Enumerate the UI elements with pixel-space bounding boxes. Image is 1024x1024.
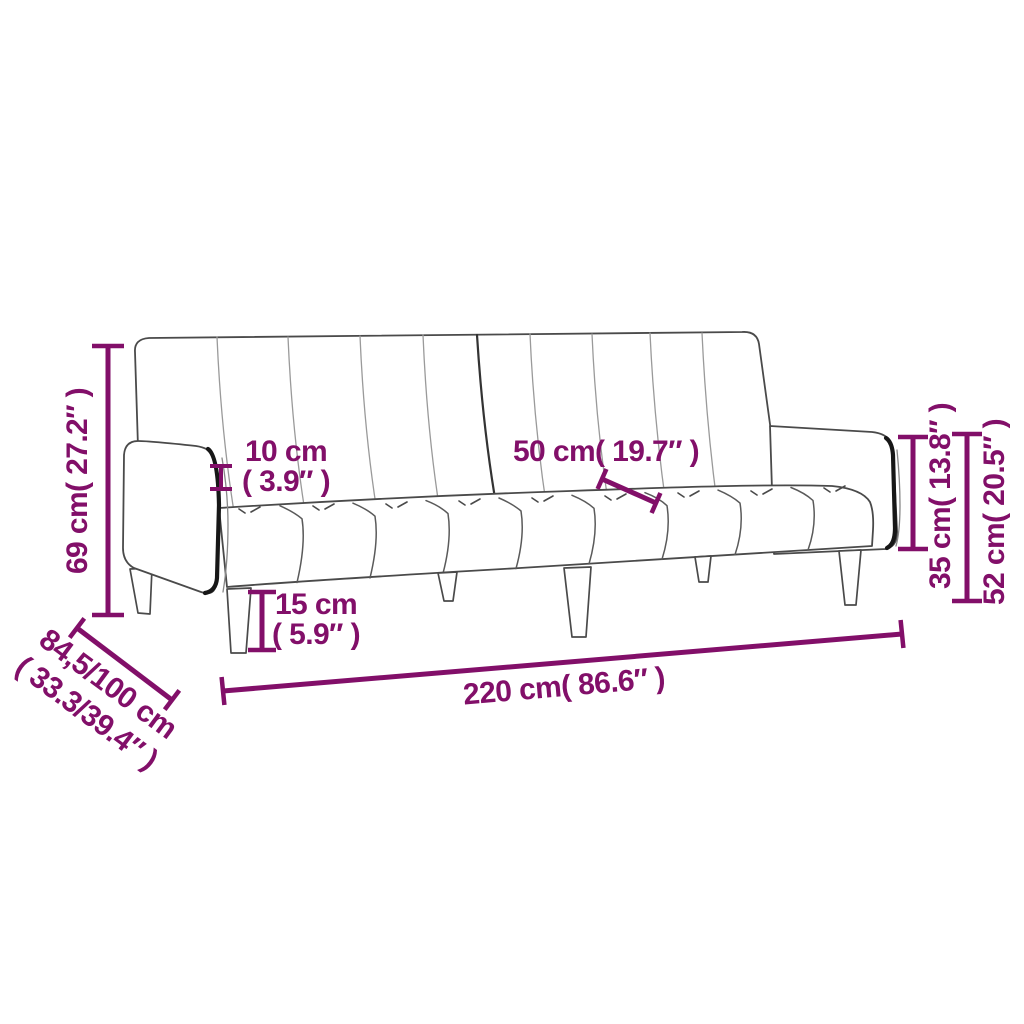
dimension-50cm-label: 50 cm( 19.7″ ) [513,437,699,467]
leg-front-middle [564,567,591,637]
backrest-outline [135,332,773,447]
dimension-10cm-inches: ( 3.9″ ) [242,467,330,497]
dimension-35cm-label: 35 cm( 13.8″ ) [926,403,956,589]
leg-front-right [839,550,861,605]
dimension-15cm-label: 15 cm ( 5.9″ ) [272,590,360,650]
leg-back-middle [438,572,457,601]
dimension-52cm-label: 52 cm( 20.5″ ) [980,419,1010,605]
dimension-15cm-inches: ( 5.9″ ) [272,620,360,650]
dimension-10cm-value: 10 cm [242,437,330,467]
dimension-69cm-label: 69 cm( 27.2″ ) [63,388,93,574]
sofa-line-art-svg [0,0,1024,1024]
dimension-15cm-value: 15 cm [272,590,360,620]
dim-line-69cm [92,346,124,615]
product-dimension-diagram: 69 cm( 27.2″ ) 10 cm ( 3.9″ ) 50 cm( 19.… [0,0,1024,1024]
leg-back-left [130,568,152,614]
leg-front-left [227,588,251,653]
left-armrest [123,441,228,593]
sofa-line-art [123,332,900,653]
dimension-10cm-label: 10 cm ( 3.9″ ) [242,437,330,497]
leg-back-right [695,556,711,582]
